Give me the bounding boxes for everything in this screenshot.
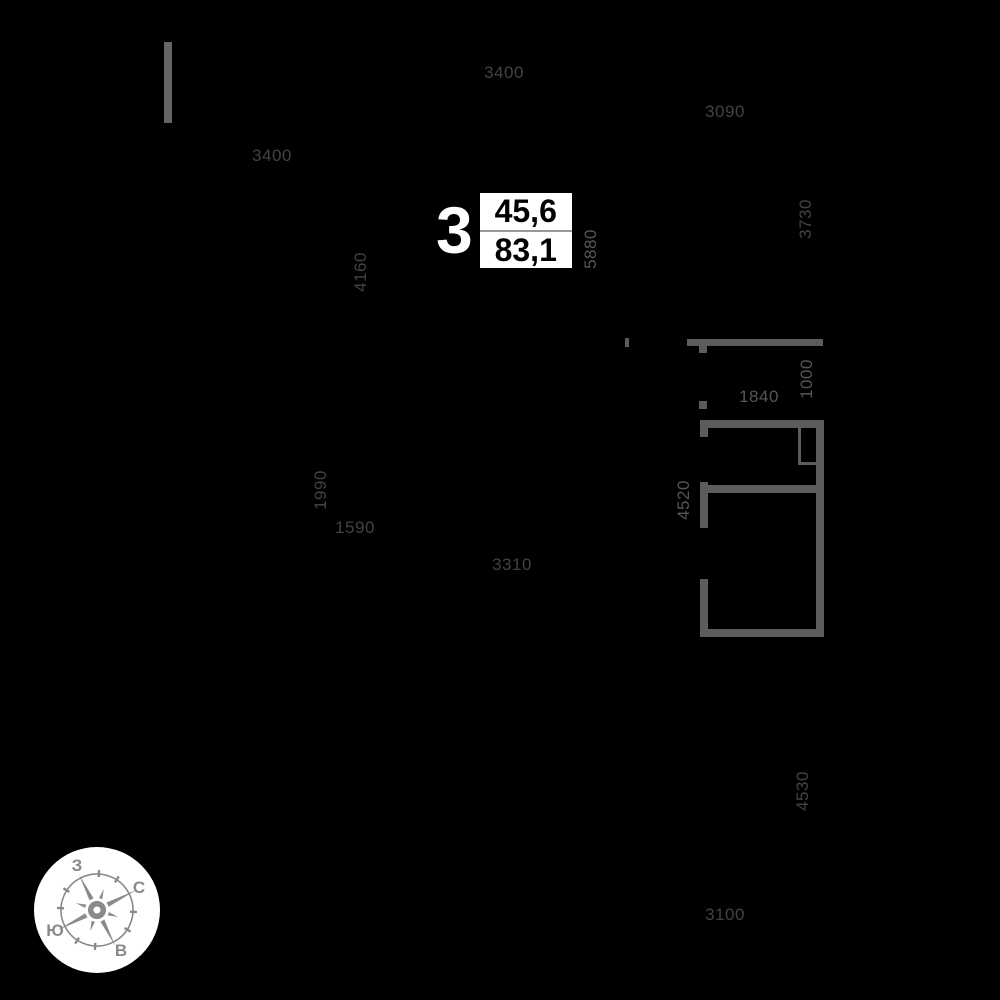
dimension-label: 5880 <box>581 229 601 269</box>
area-upper-value: 45,6 <box>480 193 572 230</box>
wall-segment <box>699 401 707 409</box>
wall-segment-interior <box>708 485 818 493</box>
dimension-label: 3400 <box>484 63 524 83</box>
dimension-label: 1000 <box>797 359 817 399</box>
wall-segment-bottom <box>700 629 824 637</box>
dimension-label: 1990 <box>311 470 331 510</box>
dimension-label: 4520 <box>674 480 694 520</box>
wall-segment <box>625 338 629 347</box>
dimension-label: 4530 <box>793 771 813 811</box>
wall-segment <box>699 346 707 353</box>
wall-segment-shaft <box>798 427 801 465</box>
dimension-label: 3730 <box>796 199 816 239</box>
wall-segment-right <box>816 420 824 637</box>
unit-info: 3 45,6 83,1 <box>436 193 572 268</box>
compass-label-north: С <box>133 878 145 897</box>
wall-segment-shaft <box>801 462 816 465</box>
dimension-label: 4160 <box>351 252 371 292</box>
wall-segment-left <box>700 420 708 437</box>
dimension-label: 3100 <box>705 905 745 925</box>
compass-rose-icon: З С Ю В <box>33 846 161 974</box>
wall-segment <box>687 339 823 346</box>
dimension-label: 3400 <box>252 146 292 166</box>
wall-segment <box>164 42 172 123</box>
unit-number: 3 <box>436 193 473 268</box>
wall-segment-top <box>700 420 824 428</box>
floor-plan-canvas: 3400 3090 3400 3730 4160 5880 1000 1840 … <box>0 0 1000 1000</box>
dimension-label: 1590 <box>335 518 375 538</box>
area-box: 45,6 83,1 <box>480 193 572 268</box>
compass-label-west: З <box>72 856 83 875</box>
dimension-label: 1840 <box>739 387 779 407</box>
compass-label-east: В <box>115 941 127 960</box>
dimension-label: 3090 <box>705 102 745 122</box>
compass-label-south: Ю <box>46 921 64 940</box>
wall-segment-left <box>700 482 708 528</box>
dimension-label: 3310 <box>492 555 532 575</box>
area-lower-value: 83,1 <box>480 232 572 269</box>
